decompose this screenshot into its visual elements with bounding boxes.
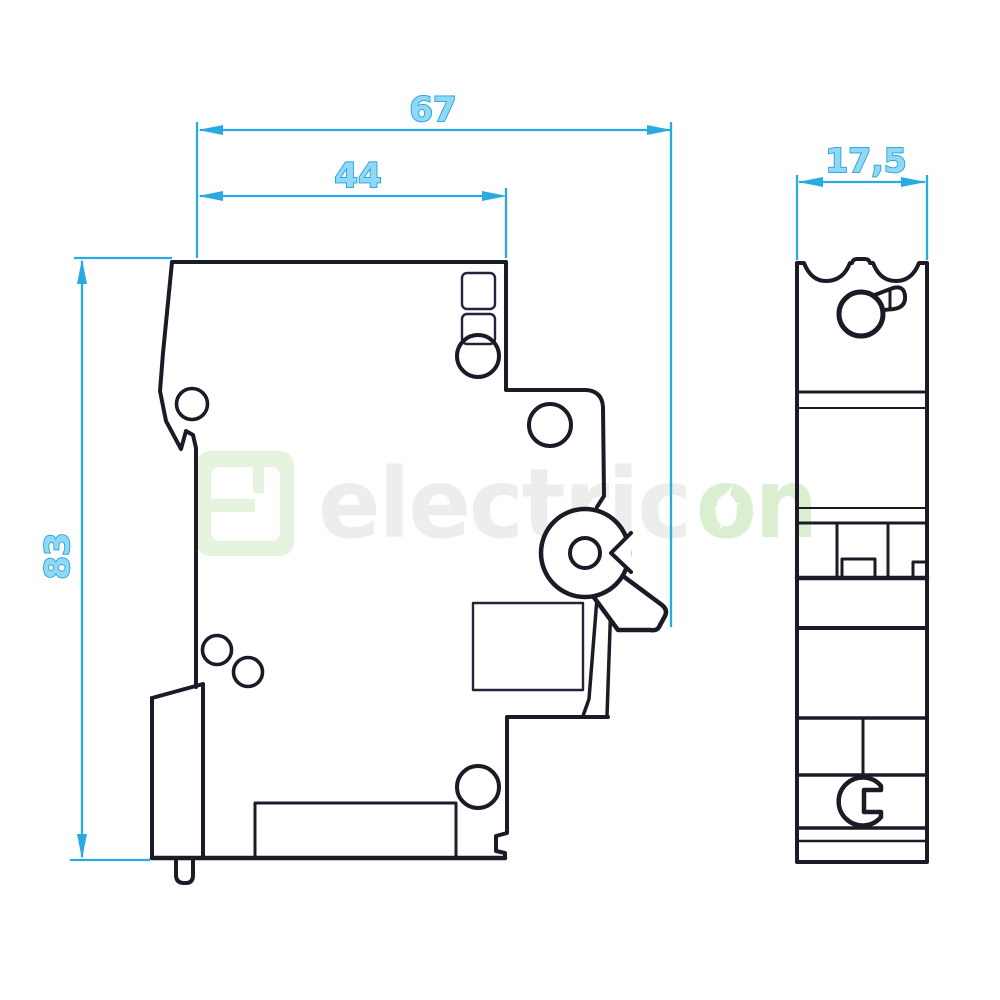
technical-drawing: electric on bbox=[0, 0, 1000, 1000]
dim-label-83: 83 bbox=[38, 532, 78, 579]
front-knob bbox=[839, 292, 883, 336]
bottom-clip bbox=[152, 684, 203, 858]
screw-hole-top bbox=[457, 335, 499, 377]
front-view bbox=[797, 259, 927, 862]
hole-lower-left-2 bbox=[234, 658, 263, 687]
screw-hole-bottom bbox=[457, 766, 499, 808]
dimension-body-depth: 44 bbox=[198, 156, 507, 258]
din-hook-outline bbox=[160, 262, 196, 687]
arrowhead-up-icon bbox=[77, 259, 87, 284]
arrowhead-left-icon bbox=[798, 177, 823, 187]
side-view bbox=[152, 262, 666, 883]
arrowhead-right-icon bbox=[647, 125, 672, 135]
arrowhead-down-icon bbox=[77, 834, 87, 859]
watermark-logo bbox=[196, 451, 294, 556]
arrowhead-right-icon bbox=[482, 191, 507, 201]
watermark-text-gray: electric bbox=[318, 448, 690, 560]
dim-label-17-5: 17,5 bbox=[825, 141, 906, 180]
lower-right-step bbox=[496, 717, 608, 858]
bottom-panel bbox=[255, 803, 456, 858]
drawing-canvas: electric on bbox=[0, 0, 1000, 1000]
hole-left bbox=[177, 389, 208, 420]
arrowhead-left-icon bbox=[198, 125, 223, 135]
dim-label-67: 67 bbox=[409, 90, 456, 130]
hole-upper-right bbox=[529, 404, 571, 446]
terminal-slot-upper bbox=[462, 273, 495, 309]
screw-head bbox=[839, 778, 881, 826]
terminal-cavity bbox=[842, 559, 875, 578]
watermark: electric on bbox=[196, 448, 816, 560]
hole-lower-left-1 bbox=[203, 636, 232, 665]
dim-label-44: 44 bbox=[334, 156, 381, 196]
bottom-tab bbox=[176, 858, 193, 883]
dimension-module-width: 17,5 bbox=[797, 141, 927, 260]
toggle-axle bbox=[570, 538, 600, 568]
label-panel bbox=[473, 603, 583, 690]
arrowhead-left-icon bbox=[198, 191, 223, 201]
